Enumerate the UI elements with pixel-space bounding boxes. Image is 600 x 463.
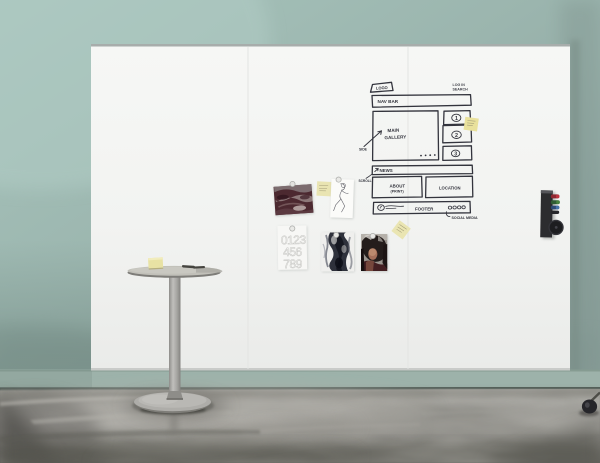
svg-text:SOCIAL MEDIA: SOCIAL MEDIA	[452, 216, 478, 220]
svg-text:NEWS: NEWS	[380, 168, 393, 173]
svg-text:2: 2	[455, 133, 458, 139]
svg-text:(PRINT): (PRINT)	[391, 189, 405, 193]
svg-text:LOGO: LOGO	[376, 85, 388, 91]
svg-text:LOG IN: LOG IN	[453, 83, 466, 87]
svg-text:1: 1	[455, 116, 458, 122]
svg-text:789: 789	[283, 257, 303, 271]
svg-text:3: 3	[454, 151, 457, 157]
svg-text:GALLERY: GALLERY	[384, 134, 406, 140]
svg-text:MAIN: MAIN	[387, 128, 400, 133]
svg-text:SEARCH: SEARCH	[453, 87, 469, 91]
svg-text:NAV BAR: NAV BAR	[378, 99, 399, 104]
svg-text:SIDE: SIDE	[359, 148, 368, 152]
svg-text:LOCATION: LOCATION	[439, 185, 461, 190]
svg-text:ABOUT: ABOUT	[390, 184, 406, 189]
svg-text:SCROLL: SCROLL	[359, 179, 372, 183]
svg-text:FOOTER: FOOTER	[415, 206, 434, 211]
